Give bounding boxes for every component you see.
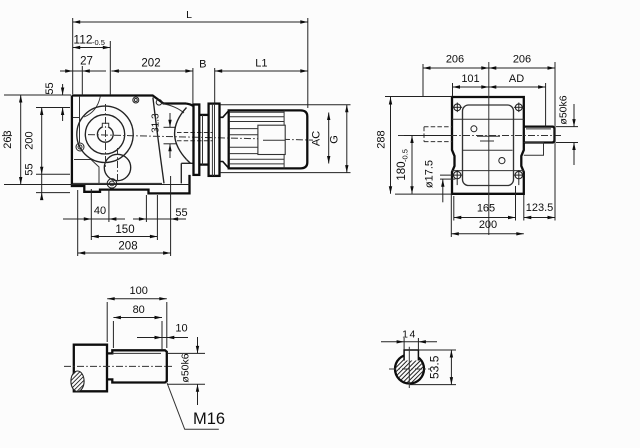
svg-text:206: 206	[446, 54, 464, 66]
svg-text:AC: AC	[311, 131, 323, 146]
svg-text:55: 55	[44, 82, 56, 94]
svg-text:112: 112	[73, 33, 92, 47]
svg-text:206: 206	[513, 54, 531, 66]
svg-text:180: 180	[396, 161, 408, 180]
svg-text:27: 27	[80, 56, 93, 68]
svg-text:80: 80	[133, 304, 145, 316]
svg-text:53.5: 53.5	[428, 355, 442, 379]
svg-text:M16: M16	[193, 410, 225, 428]
svg-text:L1: L1	[255, 58, 267, 70]
svg-text:-0.5: -0.5	[92, 38, 105, 47]
svg-text:101: 101	[461, 73, 479, 85]
svg-text:200: 200	[24, 131, 36, 149]
svg-text:ø50k6: ø50k6	[180, 353, 192, 382]
svg-text:202: 202	[141, 58, 160, 70]
svg-text:208: 208	[118, 241, 137, 253]
svg-text:55: 55	[175, 207, 187, 219]
svg-text:288: 288	[376, 130, 388, 148]
svg-text:10: 10	[175, 323, 187, 335]
svg-text:55: 55	[24, 163, 36, 175]
svg-text:ø17.5: ø17.5	[424, 160, 436, 188]
svg-text:200: 200	[479, 219, 497, 231]
svg-text:-0.5: -0.5	[401, 149, 410, 162]
svg-text:ø50k6: ø50k6	[558, 95, 570, 124]
svg-text:150: 150	[115, 224, 134, 236]
svg-text:G: G	[329, 135, 341, 144]
svg-text:L: L	[186, 9, 192, 21]
svg-text:123.5: 123.5	[526, 202, 554, 214]
svg-text:263: 263	[2, 130, 14, 148]
svg-text:14: 14	[402, 329, 417, 341]
svg-text:31.3: 31.3	[151, 113, 162, 133]
svg-text:B: B	[199, 59, 206, 71]
svg-text:165: 165	[477, 203, 495, 215]
svg-text:40: 40	[94, 205, 106, 217]
svg-text:AD: AD	[509, 73, 524, 85]
svg-text:100: 100	[130, 285, 148, 297]
